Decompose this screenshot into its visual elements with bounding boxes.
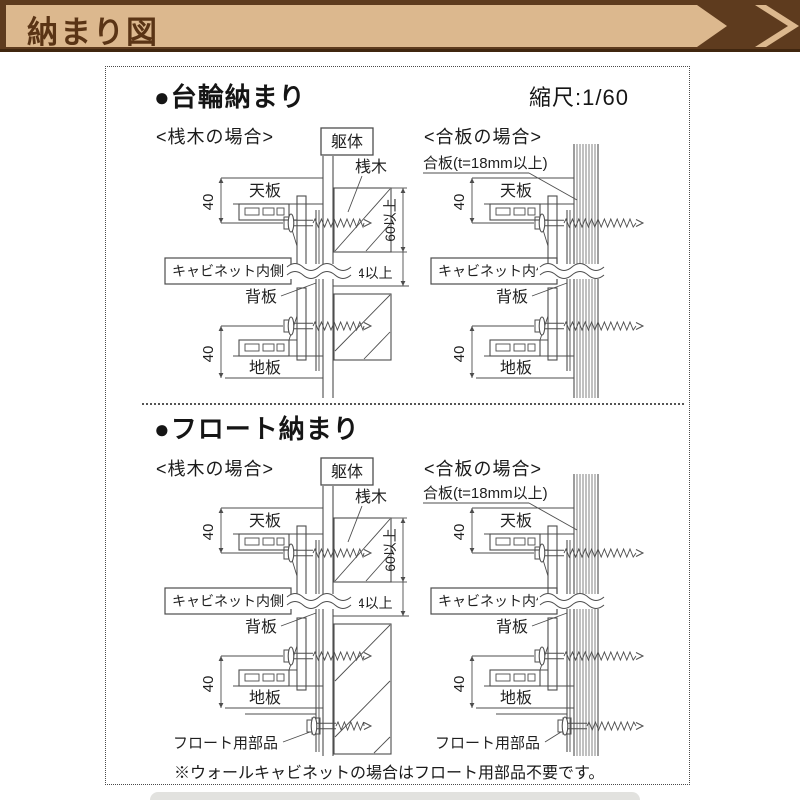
- screw-head: [539, 214, 545, 232]
- drawing-shape: [335, 295, 390, 351]
- cabinet-inside-label: キャビネット内側: [172, 263, 284, 279]
- dim-arrow-icon: [401, 247, 406, 252]
- dim-40-label: 40: [451, 676, 468, 693]
- drawing-shape: [564, 652, 636, 660]
- drawing-shape: [548, 526, 557, 601]
- drawing-shape: [348, 506, 362, 542]
- drawing-shape: [313, 549, 364, 557]
- drawing-shape: [239, 534, 289, 550]
- drawing-shape: [335, 681, 390, 737]
- float-part-label: フロート用部品: [435, 735, 540, 752]
- dim-40-label: 40: [200, 194, 217, 211]
- drawing-shape: [528, 344, 535, 351]
- drawing-shape: [636, 323, 643, 330]
- drawing-shape: [490, 340, 540, 356]
- drawing-shape: [239, 340, 289, 356]
- drawing-shape: [587, 722, 636, 730]
- dim-40-label: 40: [200, 676, 217, 693]
- dim-arrow-icon: [470, 326, 475, 331]
- diagram-float-batten: 躯体桟木60以上24以上天板40キャビネット内側背板地板40フロート用部品: [159, 456, 424, 766]
- frame-label: 躯体: [331, 463, 363, 481]
- dim-arrow-icon: [219, 548, 224, 553]
- drawing-shape: [564, 322, 636, 330]
- back-panel-label: 背板: [496, 288, 528, 306]
- drawing-shape: [263, 538, 274, 545]
- drawing-shape: [313, 322, 364, 330]
- drawing-shape: [239, 204, 289, 220]
- drawing-shape: [496, 344, 510, 351]
- drawing-shape: [277, 674, 284, 681]
- dim-40-label: 40: [200, 524, 217, 541]
- dim-60-label: 60以上: [382, 198, 398, 242]
- drawing-shape: [528, 208, 535, 215]
- drawing-shape: [514, 208, 525, 215]
- note-text: ※ウォールキャビネットの場合はフロート用部品不要です。: [174, 759, 604, 783]
- top-panel-label: 天板: [500, 512, 532, 530]
- drawing-shape: [364, 550, 371, 557]
- drawing-shape: [263, 344, 274, 351]
- drawing-shape: [313, 652, 364, 660]
- dim-arrow-icon: [401, 188, 406, 193]
- top-panel-label: 天板: [500, 182, 532, 200]
- drawing-shape: [277, 208, 284, 215]
- drawing-shape: [490, 670, 540, 686]
- dim-arrow-icon: [470, 373, 475, 378]
- dim-arrow-icon: [470, 703, 475, 708]
- drawing-shape: [263, 674, 274, 681]
- diagram-daiwa-batten: 躯体桟木60以上24以上天板40キャビネット内側背板地板40: [159, 126, 424, 406]
- drawing-shape: [245, 208, 259, 215]
- diagram-daiwa-plywood: 合板(t=18mm以上)天板40キャビネット内側背板地板40: [421, 126, 686, 406]
- drawing-shape: [514, 344, 525, 351]
- drawing-shape: [564, 549, 636, 557]
- screw-head: [539, 544, 545, 562]
- dim-arrow-icon: [470, 548, 475, 553]
- drawing-shape: [564, 219, 636, 227]
- diagram-sheet: ●台輪納まり 縮尺:1/60 <桟木の場合> <合板の場合> 躯体桟木60以上2…: [105, 66, 690, 785]
- drawing-shape: [335, 625, 390, 681]
- screw-head: [288, 214, 294, 232]
- bottom-panel-label: 地板: [500, 359, 532, 377]
- dim-arrow-icon: [219, 326, 224, 331]
- drawing-shape: [364, 723, 371, 730]
- drawing-shape: [297, 618, 306, 690]
- section-daiwa-heading: ●台輪納まり: [154, 77, 306, 114]
- cabinet-inside-label: キャビネット内側: [438, 263, 550, 279]
- drawing-shape: [636, 550, 643, 557]
- dim-arrow-icon: [219, 656, 224, 661]
- drawing-shape: [245, 538, 259, 545]
- dim-arrow-icon: [470, 508, 475, 513]
- drawing-shape: [514, 538, 525, 545]
- drawing-shape: [283, 732, 310, 742]
- dim-arrow-icon: [401, 577, 406, 582]
- dim-arrow-icon: [219, 178, 224, 183]
- dim-arrow-icon: [401, 281, 406, 286]
- batten-label: 桟木: [355, 488, 387, 506]
- dim-arrow-icon: [401, 518, 406, 523]
- dim-40-label: 40: [451, 194, 468, 211]
- drawing-shape: [496, 674, 510, 681]
- drawing-shape: [277, 344, 284, 351]
- screw-head: [288, 544, 294, 562]
- drawing-shape: [263, 208, 274, 215]
- drawing-shape: [297, 526, 306, 601]
- drawing-shape: [636, 220, 643, 227]
- drawing-shape: [532, 613, 567, 626]
- screw-head: [562, 717, 568, 735]
- dim-arrow-icon: [470, 656, 475, 661]
- drawing-shape: [281, 613, 316, 626]
- drawing-shape: [636, 653, 643, 660]
- screw-head: [288, 647, 294, 665]
- drawing-shape: [496, 208, 510, 215]
- drawing-shape: [364, 220, 371, 227]
- dim-40-label: 40: [451, 346, 468, 363]
- dim-arrow-icon: [401, 611, 406, 616]
- page-title: 納まり図: [27, 7, 159, 52]
- drawing-shape: [348, 176, 362, 212]
- batten-label: 桟木: [355, 158, 387, 176]
- drawing-shape: [528, 538, 535, 545]
- top-panel-label: 天板: [249, 512, 281, 530]
- drawing-shape: [297, 288, 306, 360]
- bottom-panel-label: 地板: [500, 689, 532, 707]
- bottom-panel-label: 地板: [249, 359, 281, 377]
- drawing-shape: [374, 737, 390, 753]
- dim-40-label: 40: [200, 346, 217, 363]
- drawing-shape: [364, 323, 371, 330]
- bottom-panel-label: 地板: [249, 689, 281, 707]
- drawing-shape: [548, 196, 557, 271]
- dim-60-label: 60以上: [382, 528, 398, 572]
- drawing-shape: [336, 722, 364, 730]
- dim-arrow-icon: [219, 508, 224, 513]
- screw-head: [288, 317, 294, 335]
- screw-head: [539, 647, 545, 665]
- drawing-shape: [239, 670, 289, 686]
- section-float-heading: ●フロート納まり: [154, 409, 360, 446]
- dim-40-label: 40: [451, 524, 468, 541]
- section-divider: [142, 403, 684, 405]
- drawing-shape: [364, 653, 371, 660]
- drawing-shape: [490, 204, 540, 220]
- back-panel-label: 背板: [245, 618, 277, 636]
- dim-arrow-icon: [470, 178, 475, 183]
- drawing-shape: [548, 288, 557, 360]
- drawing-shape: [364, 332, 390, 359]
- dim-arrow-icon: [219, 218, 224, 223]
- drawing-shape: [245, 674, 259, 681]
- drawing-shape: [548, 618, 557, 690]
- screw-head: [311, 717, 317, 735]
- next-section-peek: [150, 792, 640, 800]
- title-banner: 納まり図: [0, 0, 800, 52]
- plywood-label: 合板(t=18mm以上): [423, 484, 548, 502]
- drawing-shape: [281, 283, 316, 296]
- drawing-shape: [528, 674, 535, 681]
- drawing-shape: [245, 344, 259, 351]
- dim-arrow-icon: [219, 373, 224, 378]
- top-panel-label: 天板: [249, 182, 281, 200]
- back-panel-label: 背板: [496, 618, 528, 636]
- drawing-shape: [514, 674, 525, 681]
- diagram-float-plywood: 合板(t=18mm以上)天板40キャビネット内側背板地板40フロート用部品: [421, 456, 686, 766]
- drawing-shape: [490, 534, 540, 550]
- drawing-shape: [313, 219, 364, 227]
- dim-arrow-icon: [219, 703, 224, 708]
- drawing-shape: [297, 196, 306, 271]
- float-part-label: フロート用部品: [173, 735, 278, 752]
- screw-head: [539, 317, 545, 335]
- scale-label: 縮尺:1/60: [529, 80, 629, 112]
- drawing-shape: [496, 538, 510, 545]
- dim-arrow-icon: [470, 218, 475, 223]
- plywood-label: 合板(t=18mm以上): [423, 154, 548, 172]
- drawing-shape: [636, 723, 643, 730]
- cabinet-inside-label: キャビネット内側: [172, 593, 284, 609]
- frame-label: 躯体: [331, 133, 363, 151]
- cabinet-inside-label: キャビネット内側: [438, 593, 550, 609]
- drawing-shape: [532, 283, 567, 296]
- back-panel-label: 背板: [245, 288, 277, 306]
- drawing-shape: [277, 538, 284, 545]
- drawing-shape: [545, 732, 561, 742]
